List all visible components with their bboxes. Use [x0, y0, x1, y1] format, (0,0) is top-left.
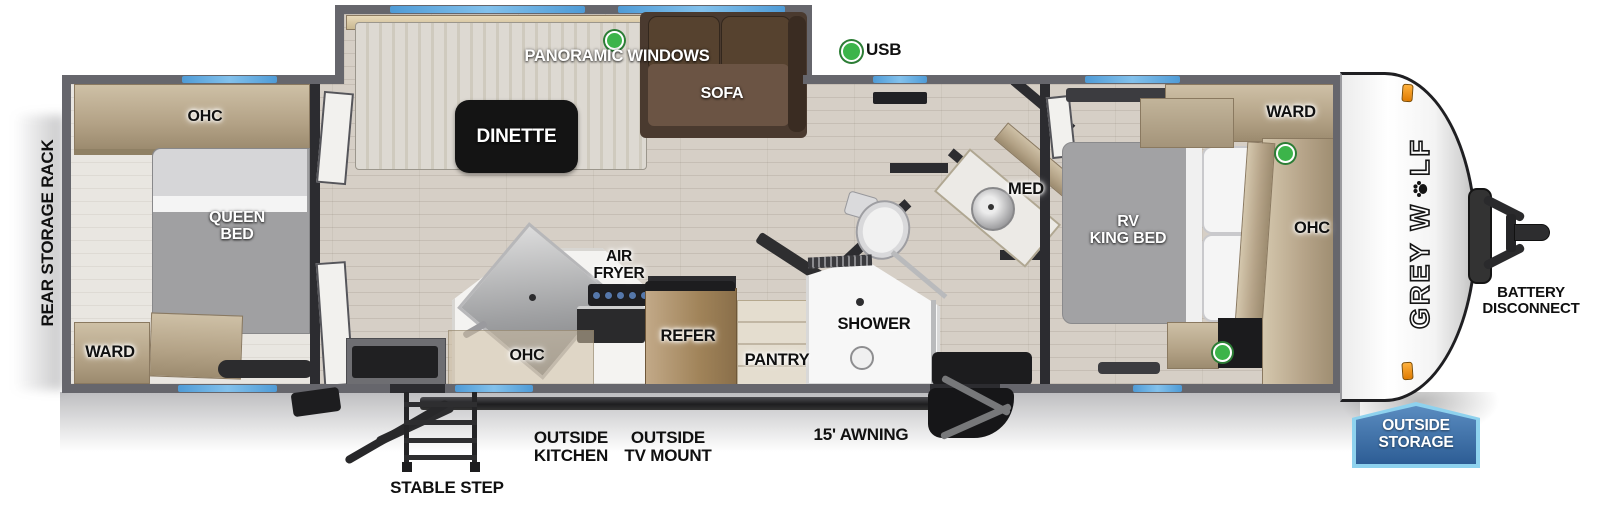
awning-bar: [420, 397, 985, 410]
bedroom-bench: [1098, 362, 1160, 374]
refer-label: REFER: [648, 326, 728, 346]
step-rung: [404, 438, 477, 443]
window-top-front: [1085, 76, 1180, 83]
step-foot-left: [402, 462, 412, 472]
panoramic-windows-label: PANORAMIC WINDOWS: [512, 46, 722, 66]
battery-disconnect-label: BATTERY DISCONNECT: [1462, 283, 1600, 319]
pantry-cabinet: [737, 300, 812, 388]
pantry-label: PANTRY: [735, 350, 819, 370]
stove-burner: [628, 291, 637, 300]
outside-kitchen-label: OUTSIDE KITCHEN: [521, 428, 621, 466]
sofa-arm: [788, 16, 806, 132]
queen-bed-head: [153, 149, 307, 199]
tv-mount-interior: [873, 92, 927, 104]
sofa-label: SOFA: [682, 84, 762, 104]
awning-label: 15' AWNING: [801, 425, 921, 445]
slideout-window-left: [390, 6, 585, 13]
rear-storage-rack-label: REAR STORAGE RACK: [37, 133, 59, 333]
stove-burner: [592, 291, 601, 300]
window-top-mid: [873, 76, 927, 83]
front-ward-label: WARD: [1251, 102, 1331, 122]
usb-indicator-bedroom-top: [1276, 144, 1295, 163]
stove-burner: [616, 291, 625, 300]
step-foot-right: [470, 462, 480, 472]
nightstand: [1167, 322, 1219, 369]
window-bottom-front: [1133, 385, 1182, 392]
shower-drain: [856, 298, 864, 306]
window-top-rear: [182, 76, 277, 83]
front-ohc-label: OHC: [1272, 218, 1352, 238]
window-bottom-rear: [178, 385, 277, 392]
rear-drawer: [218, 360, 314, 378]
bath-wall-top: [890, 163, 948, 173]
usb-indicator-legend: [841, 41, 862, 62]
usb-indicator-bedroom-bottom: [1213, 343, 1232, 362]
slideout-wall-left: [335, 5, 344, 85]
stable-step-label: STABLE STEP: [377, 478, 517, 498]
stove-burner: [604, 291, 613, 300]
med-sink-drain: [988, 204, 994, 210]
kitchen-counter-left-top: [352, 346, 438, 378]
shower-faucet: [850, 346, 874, 370]
rear-ohc-label: OHC: [165, 106, 245, 128]
kitchen-sink-drain: [529, 294, 536, 301]
marker-light-top: [1401, 84, 1413, 103]
hitch-coupler: [1514, 224, 1550, 241]
rear-partition-wall: [310, 84, 320, 384]
air-fryer-label: AIR FRYER: [579, 248, 659, 284]
dinette-table: DINETTE: [455, 100, 578, 173]
paw-icon: [1410, 179, 1430, 199]
floorplan: DINETTE: [0, 0, 1600, 526]
step-rung: [404, 455, 477, 460]
step-rung: [404, 420, 477, 425]
front-ohc-cabinet: [1262, 138, 1337, 386]
rv-king-bed-label: RV KING BED: [1068, 210, 1188, 250]
marker-light-bottom: [1401, 362, 1413, 381]
shower-label: SHOWER: [824, 314, 924, 334]
window-bottom-kitchen: [455, 385, 533, 392]
dinette-label: DINETTE: [477, 126, 557, 148]
outside-storage-label: OUTSIDE STORAGE: [1379, 418, 1454, 451]
med-label: MED: [996, 179, 1056, 199]
rear-ward-label: WARD: [70, 342, 150, 362]
queen-bed-label: QUEEN BED: [187, 205, 287, 247]
kitchen-ohc-label: OHC: [487, 345, 567, 367]
front-ward-extension: [1140, 98, 1234, 148]
king-bed-sheet: [1186, 142, 1202, 322]
outside-tv-mount-label: OUTSIDE TV MOUNT: [608, 428, 728, 466]
outside-storage-badge-inner: OUTSIDE STORAGE: [1356, 406, 1476, 464]
brand-text-prefix: GREY W: [1405, 202, 1436, 329]
brand-logo: GREY W LF: [1407, 103, 1433, 363]
door-sill-main: [390, 384, 445, 393]
brand-text-suffix: LF: [1405, 137, 1436, 176]
usb-label: USB: [866, 40, 926, 60]
step-rung: [404, 402, 477, 407]
